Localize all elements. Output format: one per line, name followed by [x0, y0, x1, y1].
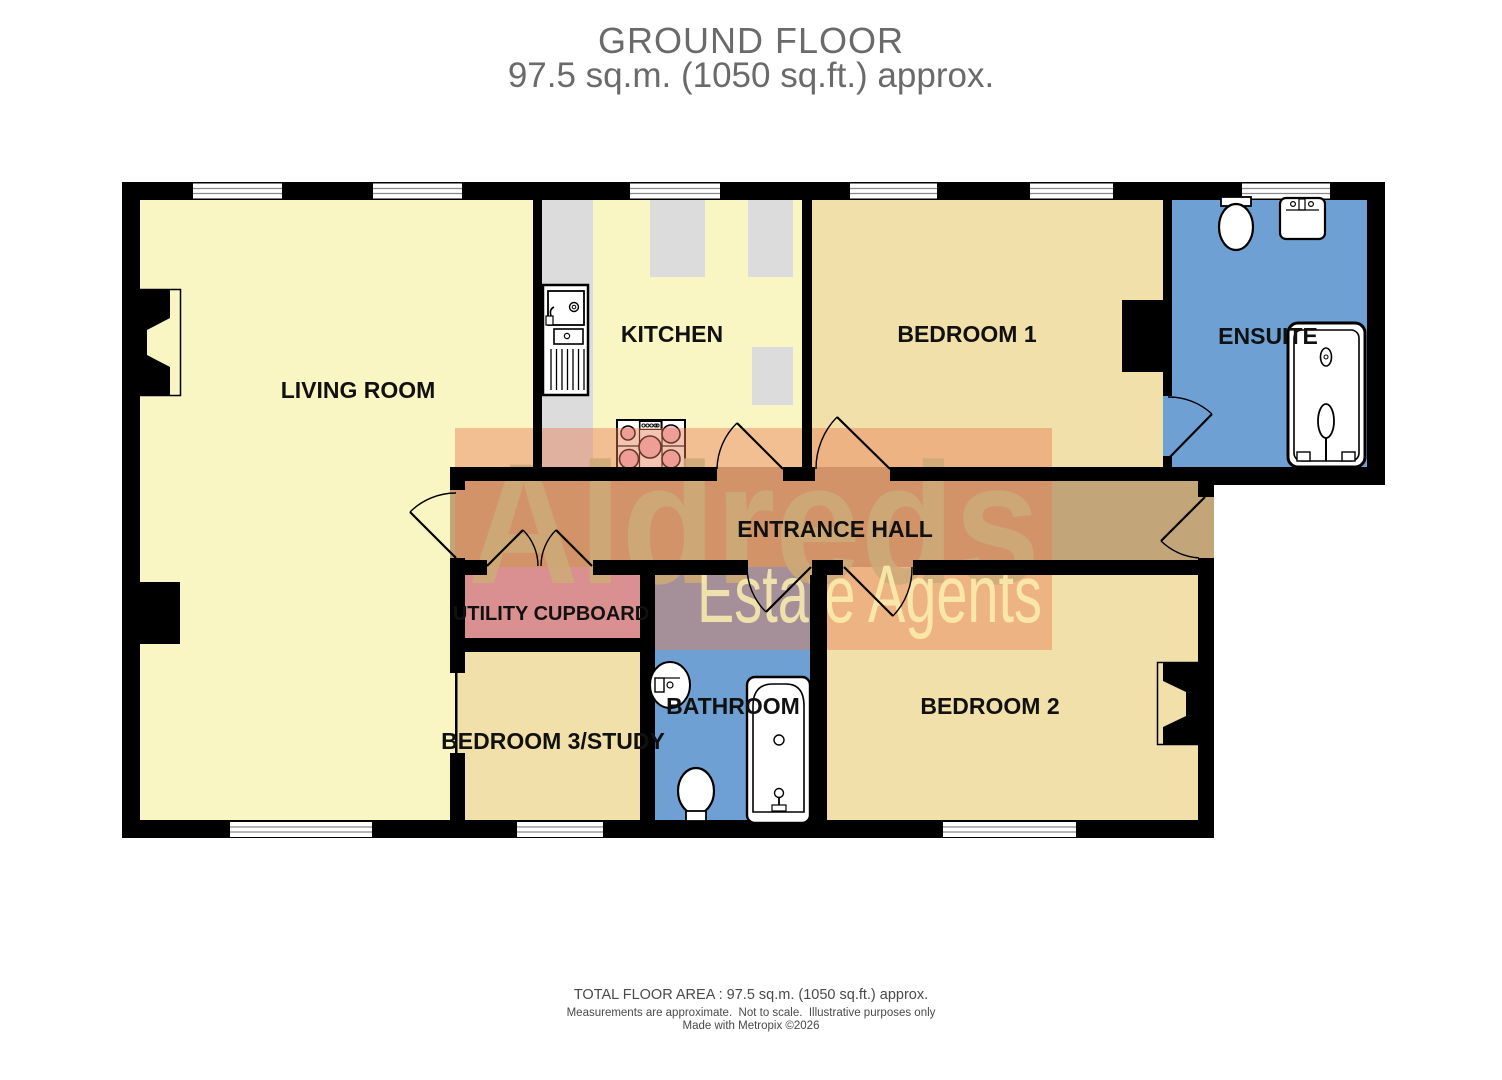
counter-block-right: [752, 347, 793, 405]
window: [373, 184, 462, 199]
bedroom3-label: BEDROOM 3/STUDY: [441, 728, 665, 754]
wall-left: [122, 200, 140, 838]
wall-bathroom-bedroom2: [810, 575, 827, 822]
living-room-label: LIVING ROOM: [281, 377, 436, 403]
ensuite-toilet-icon: [1219, 197, 1253, 250]
wall-kitchen-bedroom1: [802, 200, 812, 467]
disclaimer: Measurements are approximate. Not to sca…: [0, 1007, 1502, 1019]
window: [943, 822, 1076, 837]
wall-living-kitchen: [533, 200, 542, 467]
living-room-chimney-block: [140, 582, 180, 644]
wardrobe-block: [1122, 300, 1163, 372]
window: [630, 184, 720, 199]
bedroom2-label: BEDROOM 2: [920, 693, 1059, 719]
wall-ensuite-right: [1367, 182, 1385, 485]
bedroom1-label: BEDROOM 1: [897, 321, 1037, 347]
kitchen-label: KITCHEN: [621, 321, 723, 347]
entrance-hall-label: ENTRANCE HALL: [737, 516, 933, 542]
kitchen-sink-icon: [543, 285, 588, 395]
counter-block-top-right: [748, 200, 793, 277]
total-floor-area: TOTAL FLOOR AREA : 97.5 sq.m. (1050 sq.f…: [0, 987, 1502, 1003]
wall-right-lower: [1198, 558, 1214, 838]
wall-ensuite-bottom: [1214, 467, 1367, 485]
wall-bedroom1-ensuite: [1163, 200, 1172, 396]
metropix-credit: Made with Metropix ©2026: [0, 1020, 1502, 1032]
window: [1030, 184, 1113, 199]
bathroom-label: BATHROOM: [666, 693, 800, 719]
window: [1242, 184, 1330, 199]
floorplan-drawing: Aldreds Estate Agents: [0, 0, 1502, 960]
ensuite-basin-icon: [1280, 198, 1325, 239]
window: [230, 822, 372, 837]
counter-block-top-middle: [650, 200, 705, 277]
wall-utility-bottom: [450, 638, 655, 652]
floorplan-page: GROUND FLOOR 97.5 sq.m. (1050 sq.ft.) ap…: [0, 0, 1502, 1080]
ensuite-label: ENSUITE: [1218, 323, 1318, 349]
window: [517, 822, 603, 837]
window: [850, 184, 937, 199]
wall-top: [122, 182, 1385, 200]
window: [193, 184, 282, 199]
utility-cupboard-label: UTILITY CUPBOARD: [453, 603, 649, 625]
